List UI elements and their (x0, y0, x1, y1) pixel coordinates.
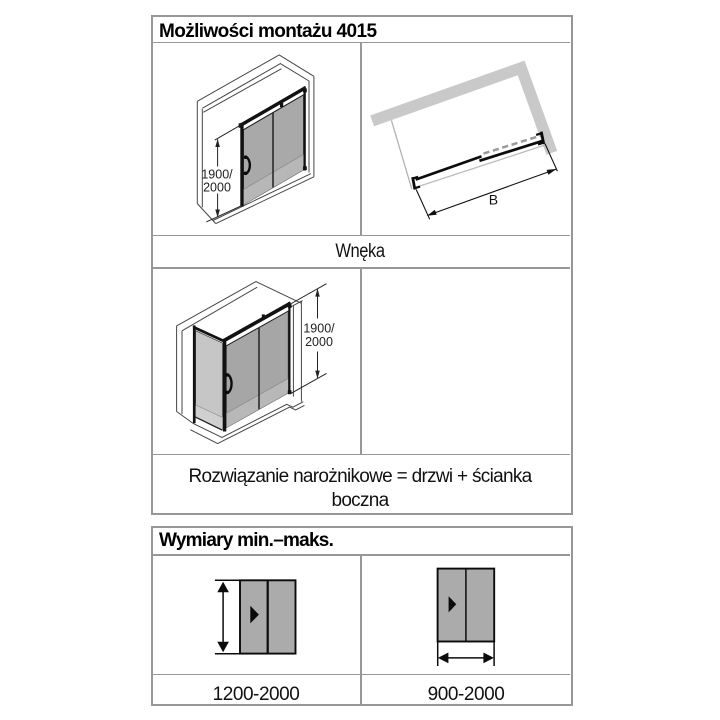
svg-text:2000: 2000 (203, 180, 231, 194)
svg-text:1900/: 1900/ (303, 321, 335, 335)
svg-text:B: B (489, 192, 498, 208)
svg-text:1900/: 1900/ (201, 167, 233, 181)
svg-text:2000: 2000 (305, 335, 333, 349)
